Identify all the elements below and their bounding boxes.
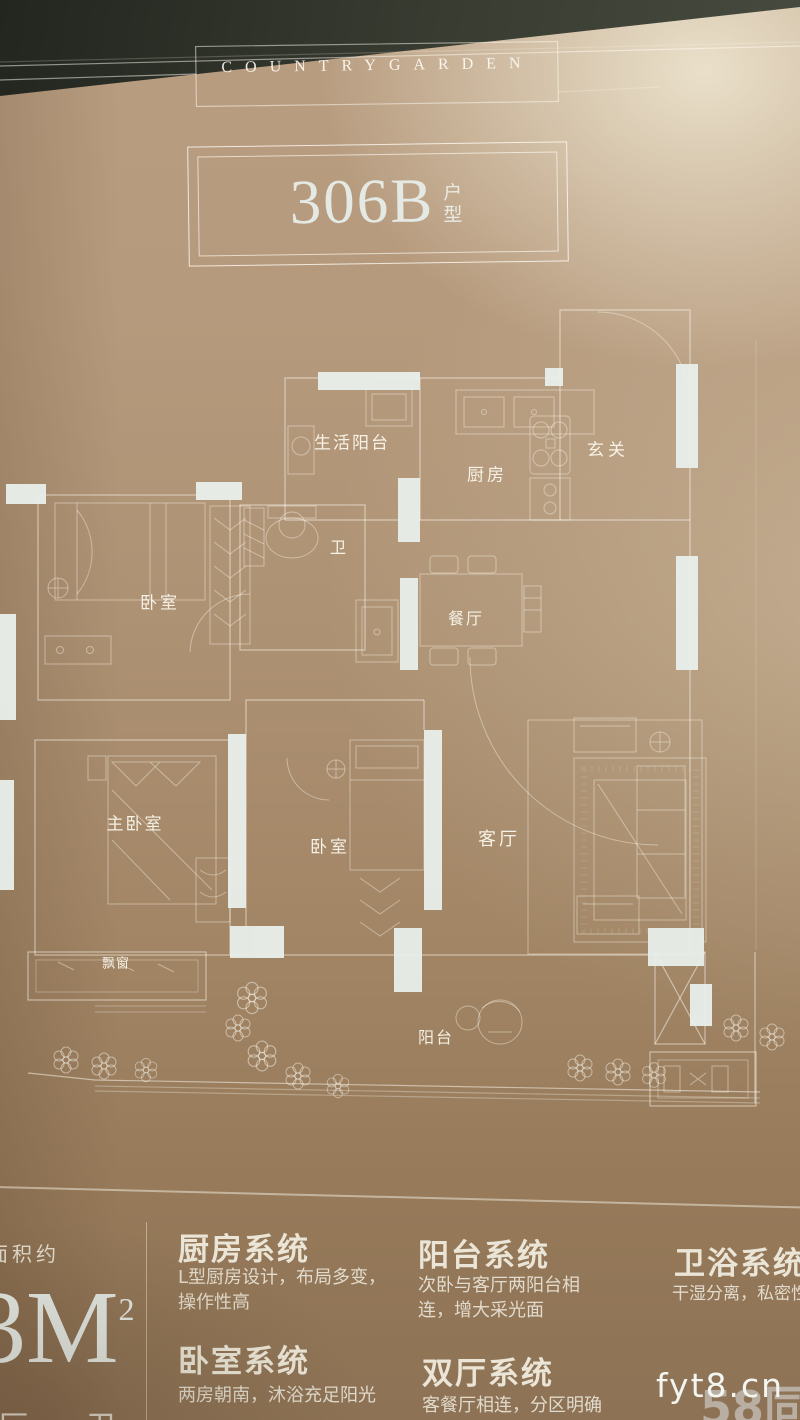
unit-code: 306B — [289, 169, 434, 234]
section-divider-line — [0, 1186, 800, 1208]
floor-plan-drawing — [0, 280, 800, 1130]
system-bathroom-title: 卫浴系统 — [674, 1238, 800, 1283]
room-label-dining: 餐厅 — [448, 605, 484, 629]
site-watermark: fyt8.cn — [656, 1366, 784, 1405]
system-bedroom-title: 卧室系统 — [178, 1336, 310, 1381]
unit-title: 306B 户型 — [197, 150, 556, 253]
area-number-partial: 3M — [0, 1270, 118, 1385]
system-double-hall-title: 双厅系统 — [422, 1348, 554, 1393]
room-label-master-bedroom: 主卧室 — [107, 810, 164, 835]
area-superscript: 2 — [118, 1291, 134, 1327]
room-label-bath: 卫 — [330, 534, 348, 558]
area-prefix-label: 面积约 — [0, 1238, 60, 1267]
system-bedroom-desc: 两房朝南，沐浴充足阳光 — [178, 1384, 408, 1409]
room-label-bedroom-middle: 卧室 — [310, 833, 350, 858]
system-double-hall-desc: 客餐厅相连，分区明确 — [422, 1394, 652, 1419]
system-bathroom-desc: 干湿分离，私密性 — [672, 1283, 800, 1306]
room-label-balcony: 阳台 — [418, 1024, 454, 1048]
system-balcony-title: 阳台系统 — [418, 1230, 550, 1275]
floor-plan-furniture — [45, 312, 706, 1044]
system-kitchen-desc: L型厨房设计，布局多变， 操作性高 — [178, 1266, 393, 1316]
room-label-foyer: 玄关 — [587, 436, 629, 461]
room-label-bay-window: 飘窗 — [102, 953, 130, 972]
area-value: 3M2 — [0, 1280, 134, 1376]
room-label-living-room: 客厅 — [478, 825, 520, 851]
brochure-photo: COUNTRYGARDEN 306B 户型 — [0, 0, 800, 1420]
system-balcony-desc: 次卧与客厅两阳台相 连，增大采光面 — [418, 1274, 603, 1324]
column-divider-line — [146, 1222, 147, 1420]
system-kitchen-title: 厨房系统 — [178, 1224, 310, 1269]
room-label-kitchen: 厨房 — [467, 461, 507, 486]
floor-plan-wall-highlights — [0, 364, 712, 1026]
room-label-bedroom-north: 卧室 — [140, 589, 180, 614]
unit-type-label: 户型 — [443, 183, 465, 227]
layout-summary-cutoff: 厅一卫 — [0, 1402, 130, 1420]
room-label-service-balcony: 生活阳台 — [314, 429, 390, 454]
